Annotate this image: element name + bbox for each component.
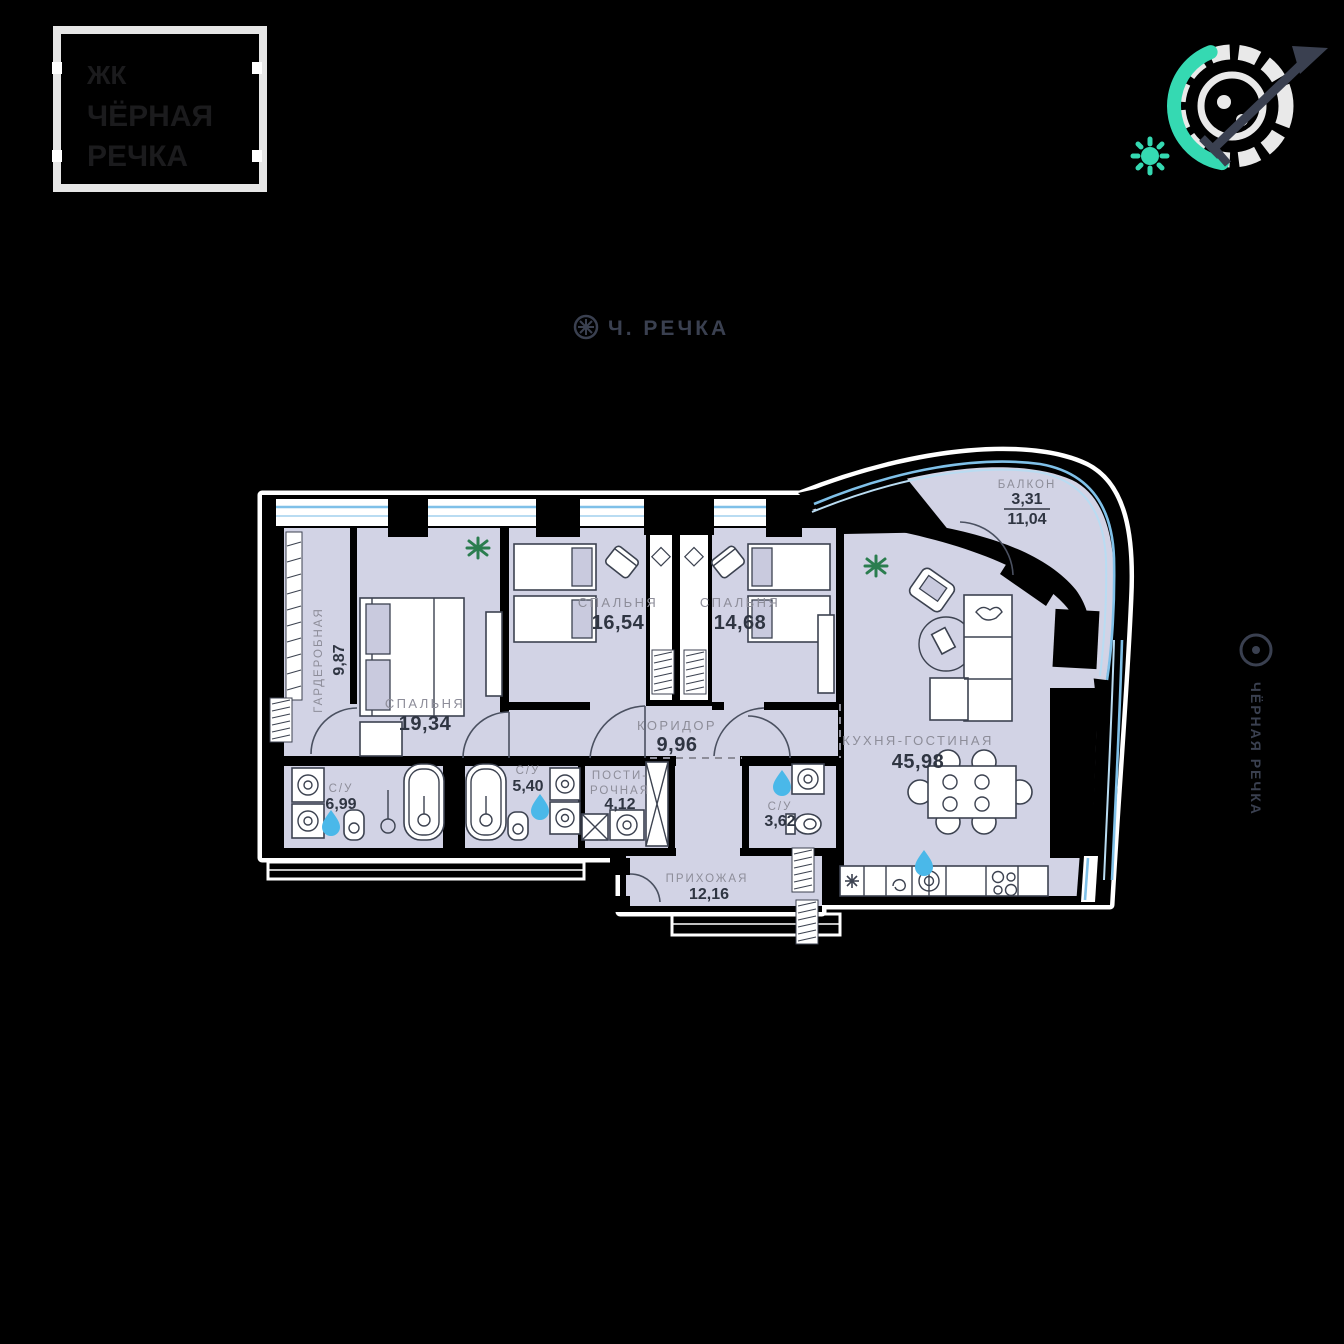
room-area-kitchen: 45,98	[892, 751, 945, 773]
wardrobe-cabinet	[486, 612, 502, 696]
room-area-bedroom-2: 16,54	[592, 612, 645, 634]
room-label-kitchen: КУХНЯ-ГОСТИНАЯ	[842, 733, 993, 748]
plant-icon	[467, 538, 489, 558]
room-label-bedroom-master: СПАЛЬНЯ	[385, 696, 465, 711]
room-label-bedroom-3: СПАЛЬНЯ	[700, 595, 780, 610]
shaft-interior	[650, 530, 708, 702]
room-label-balcony: БАЛКОН	[998, 479, 1057, 491]
room-area-hallway: 12,16	[689, 886, 729, 903]
room-label-laundry-1: ПОСТИ-	[592, 770, 648, 782]
room-label-bath-1: С/У	[329, 783, 354, 795]
freezer-icon	[845, 874, 859, 888]
room-area-corridor: 9,96	[657, 734, 698, 756]
logo: ЖК ЧЁРНАЯ РЕЧКА	[52, 30, 263, 188]
radiator-coil	[270, 698, 292, 742]
plant-icon	[865, 556, 887, 576]
side-label-text: ЧЁРНАЯ РЕЧКА	[1248, 682, 1264, 816]
room-label-corridor: КОРИДОР	[637, 718, 717, 733]
plan-title-icon	[575, 316, 597, 338]
plan-title-text: Ч. РЕЧКА	[608, 317, 729, 340]
compass-icon	[1133, 39, 1328, 173]
side-label: ЧЁРНАЯ РЕЧКА	[1241, 635, 1271, 816]
room-label-wardrobe: ГАРДЕРОБНАЯ	[313, 607, 325, 713]
room-area-wardrobe: 9,87	[331, 644, 348, 675]
room-area-bath-3: 3,62	[764, 813, 795, 830]
logo-line-3: РЕЧКА	[87, 140, 188, 173]
logo-line-1: ЖК	[86, 60, 126, 90]
room-label-hallway: ПРИХОЖАЯ	[666, 873, 749, 885]
kitchen-counter	[840, 866, 1048, 896]
room-label-bedroom-2: СПАЛЬНЯ	[578, 595, 658, 610]
room-label-bath-3: С/У	[768, 801, 793, 813]
room-label-bath-2: С/У	[516, 765, 541, 777]
room-area-laundry: 4,12	[604, 796, 635, 813]
room-area-bath-2: 5,40	[512, 778, 543, 795]
room-area-bedroom-3: 14,68	[714, 612, 767, 634]
room-area-bath-1: 6,99	[325, 796, 356, 813]
floor-plan-page: ЖК ЧЁРНАЯ РЕЧКА	[0, 0, 1344, 1344]
logo-line-2: ЧЁРНАЯ	[87, 100, 213, 133]
room-area-balcony-full: 11,04	[1007, 511, 1046, 528]
plan-title: Ч. РЕЧКА	[575, 316, 729, 340]
compass-sun-icon	[1133, 139, 1167, 173]
room-area-bedroom-master: 19,34	[399, 713, 452, 735]
corner-window	[1081, 856, 1098, 902]
room-area-balcony-reduced: 3,31	[1011, 491, 1042, 508]
